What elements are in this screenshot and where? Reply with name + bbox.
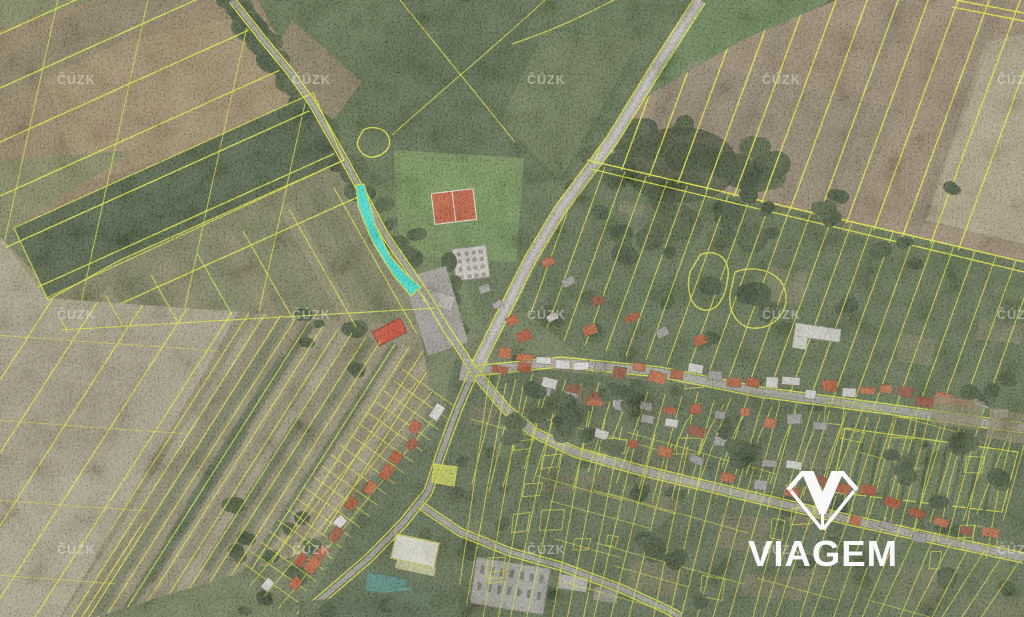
svg-text:ČÚZK: ČÚZK [57, 542, 96, 557]
svg-text:ČÚZK: ČÚZK [527, 307, 566, 322]
svg-text:VIAGEM: VIAGEM [748, 533, 898, 574]
svg-text:ČÚZK: ČÚZK [57, 307, 96, 322]
svg-text:ČÚZK: ČÚZK [762, 72, 801, 87]
svg-text:ČÚZK: ČÚZK [57, 72, 96, 87]
svg-text:ČÚZK: ČÚZK [292, 72, 331, 87]
svg-text:ČÚZK: ČÚZK [762, 307, 801, 322]
svg-text:ČÚZK: ČÚZK [292, 542, 331, 557]
svg-text:ČÚZK: ČÚZK [527, 542, 566, 557]
svg-text:ČÚZK: ČÚZK [997, 307, 1024, 322]
svg-text:ČÚZK: ČÚZK [527, 72, 566, 87]
svg-text:ČÚZK: ČÚZK [997, 72, 1024, 87]
svg-text:ČÚZK: ČÚZK [292, 307, 331, 322]
svg-text:ČÚZK: ČÚZK [997, 542, 1024, 557]
